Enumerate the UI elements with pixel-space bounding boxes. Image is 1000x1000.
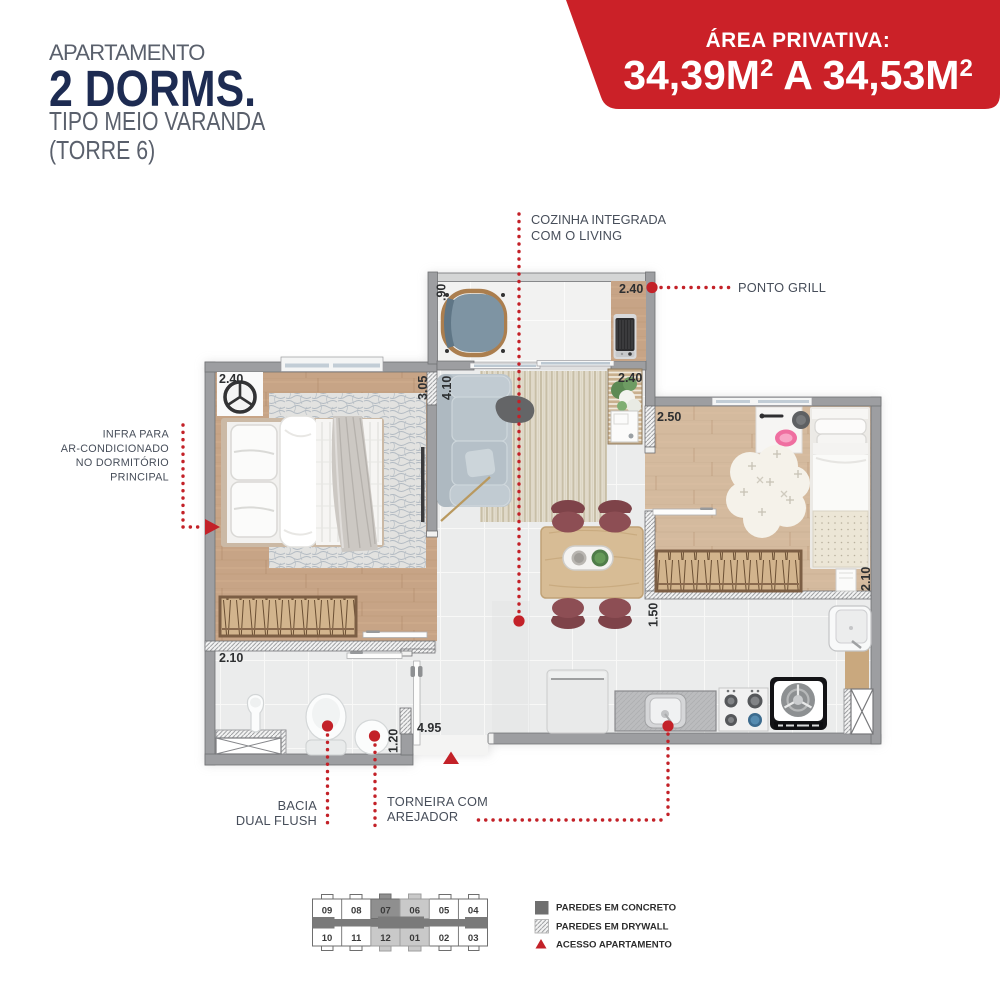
svg-text:NO DORMITÓRIO: NO DORMITÓRIO [76, 456, 169, 469]
svg-text:PONTO GRILL: PONTO GRILL [738, 280, 826, 295]
svg-text:07: 07 [380, 906, 391, 917]
svg-text:.90: .90 [435, 284, 449, 301]
svg-text:3.05: 3.05 [416, 376, 430, 400]
svg-text:05: 05 [439, 906, 450, 917]
svg-text:COZINHA INTEGRADA: COZINHA INTEGRADA [531, 212, 667, 227]
svg-text:1.50: 1.50 [647, 603, 661, 627]
svg-text:04: 04 [468, 906, 479, 917]
svg-text:03: 03 [468, 933, 479, 944]
svg-text:2.10: 2.10 [219, 651, 243, 665]
svg-text:2.50: 2.50 [657, 410, 681, 424]
svg-text:02: 02 [439, 933, 450, 944]
svg-text:09: 09 [322, 906, 333, 917]
svg-text:08: 08 [351, 906, 362, 917]
svg-text:10: 10 [322, 933, 333, 944]
svg-text:1.20: 1.20 [387, 729, 401, 753]
svg-text:12: 12 [380, 933, 391, 944]
svg-text:2.40: 2.40 [219, 372, 243, 386]
svg-text:2.40: 2.40 [619, 282, 643, 296]
svg-text:BACIA: BACIA [278, 798, 318, 813]
svg-text:PAREDES EM CONCRETO: PAREDES EM CONCRETO [556, 903, 677, 914]
svg-text:DUAL FLUSH: DUAL FLUSH [236, 813, 317, 828]
svg-text:AREJADOR: AREJADOR [387, 809, 458, 824]
svg-text:06: 06 [409, 906, 420, 917]
svg-text:2.10: 2.10 [859, 567, 873, 591]
svg-text:2.40: 2.40 [618, 371, 642, 385]
svg-text:COM O LIVING: COM O LIVING [531, 228, 622, 243]
svg-text:INFRA PARA: INFRA PARA [103, 429, 170, 441]
svg-text:AR-CONDICIONADO: AR-CONDICIONADO [61, 443, 169, 455]
svg-text:4.95: 4.95 [417, 721, 441, 735]
svg-text:01: 01 [409, 933, 420, 944]
svg-text:PAREDES EM DRYWALL: PAREDES EM DRYWALL [556, 922, 669, 933]
svg-text:TORNEIRA COM: TORNEIRA COM [387, 794, 488, 809]
svg-text:ACESSO APARTAMENTO: ACESSO APARTAMENTO [556, 940, 672, 951]
svg-text:11: 11 [351, 933, 362, 944]
svg-text:PRINCIPAL: PRINCIPAL [110, 471, 169, 483]
svg-text:4.10: 4.10 [440, 376, 454, 400]
